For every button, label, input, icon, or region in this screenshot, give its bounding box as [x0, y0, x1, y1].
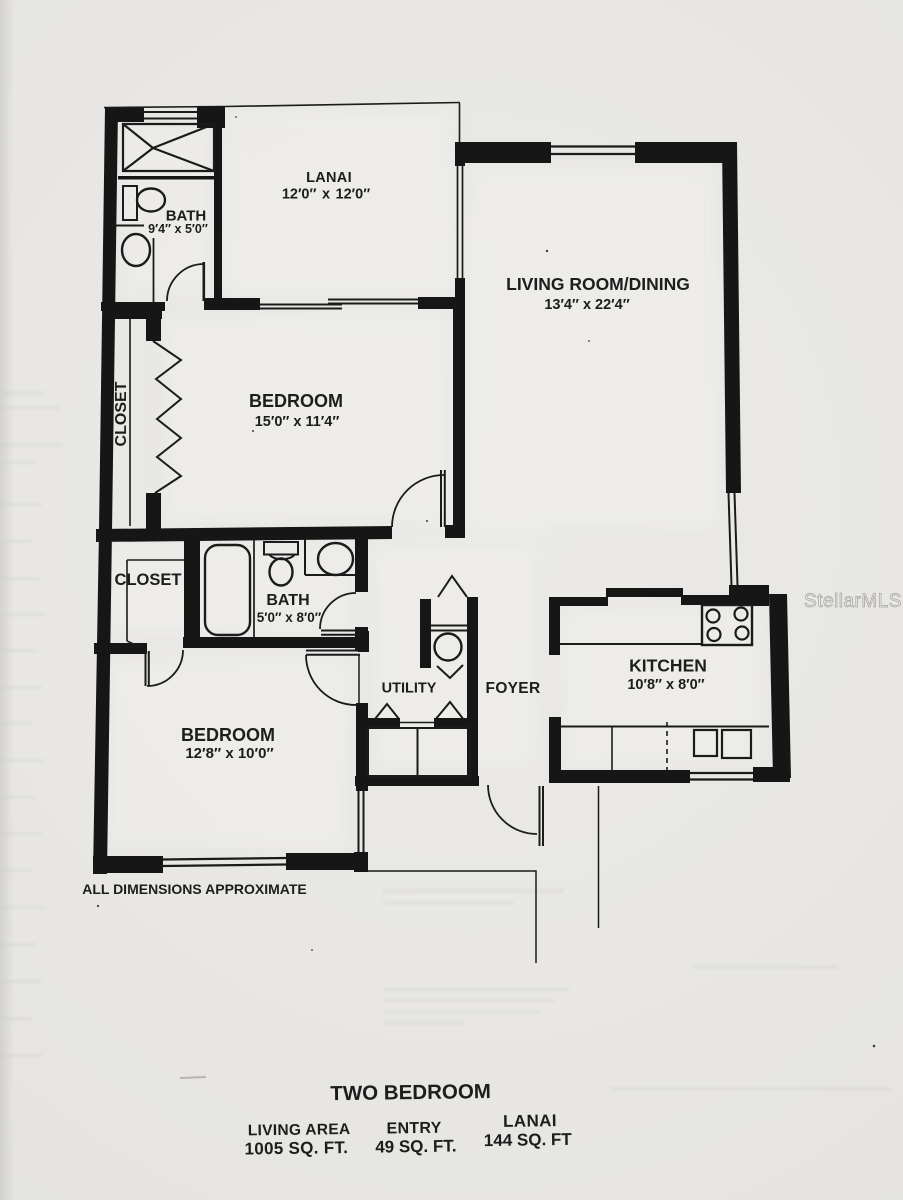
svg-text:ENTRY: ENTRY — [386, 1120, 441, 1138]
svg-text:LIVING AREA: LIVING AREA — [248, 1121, 351, 1139]
svg-text:LANAI: LANAI — [306, 170, 352, 186]
svg-text:BEDROOM: BEDROOM — [181, 725, 275, 745]
svg-text:ALL DIMENSIONS APPROXIMATE: ALL DIMENSIONS APPROXIMATE — [82, 881, 307, 897]
svg-text:144 SQ. FT: 144 SQ. FT — [484, 1130, 573, 1150]
svg-text:LIVING ROOM/DINING: LIVING ROOM/DINING — [506, 274, 690, 294]
svg-text:12′8″ x 10′0″: 12′8″ x 10′0″ — [185, 745, 273, 762]
svg-text:UTILITY: UTILITY — [382, 681, 437, 697]
svg-text:BEDROOM: BEDROOM — [249, 391, 343, 411]
svg-text:CLOSET: CLOSET — [115, 571, 182, 589]
svg-text:KITCHEN: KITCHEN — [629, 656, 707, 676]
svg-text:StellarMLS: StellarMLS — [804, 591, 902, 612]
svg-text:LANAI: LANAI — [503, 1111, 557, 1131]
svg-text:10′8″ x 8′0″: 10′8″ x 8′0″ — [627, 677, 704, 693]
svg-text:1005 SQ. FT.: 1005 SQ. FT. — [244, 1138, 348, 1158]
svg-text:5′0″ x 8′0″: 5′0″ x 8′0″ — [257, 610, 322, 625]
svg-text:9′4″ x 5′0″: 9′4″ x 5′0″ — [148, 222, 208, 236]
svg-text:49 SQ. FT.: 49 SQ. FT. — [375, 1136, 457, 1156]
svg-text:CLOSET: CLOSET — [113, 381, 130, 446]
svg-text:15′0″ x 11′4″: 15′0″ x 11′4″ — [255, 414, 340, 430]
svg-text:BATH: BATH — [266, 592, 309, 609]
svg-text:13′4″ x 22′4″: 13′4″ x 22′4″ — [544, 297, 629, 313]
svg-text:FOYER: FOYER — [486, 680, 541, 697]
svg-text:TWO BEDROOM: TWO BEDROOM — [330, 1080, 491, 1105]
svg-text:12′0″ x 12′0″: 12′0″ x 12′0″ — [282, 187, 370, 203]
